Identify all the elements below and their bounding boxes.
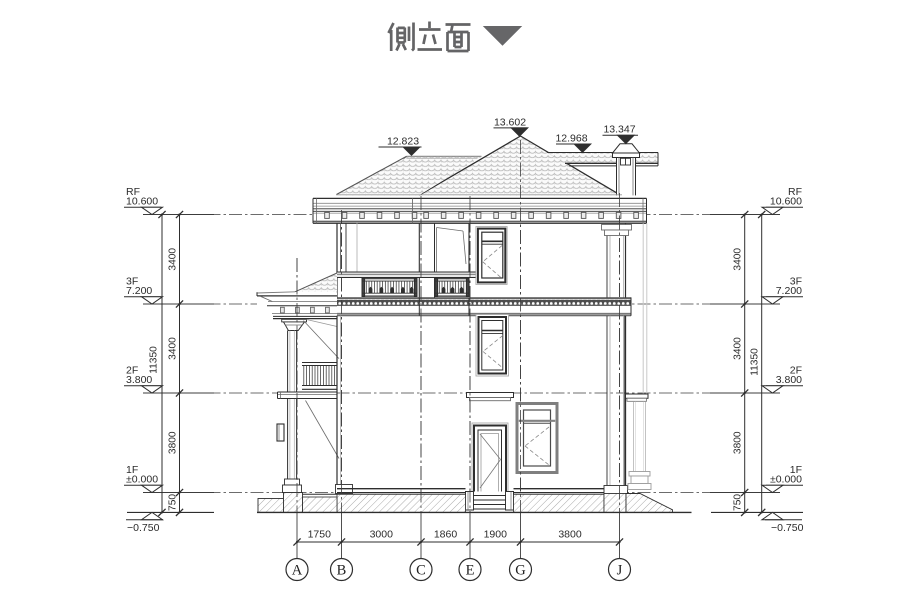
svg-text:3400: 3400 [168,337,179,360]
svg-text:3800: 3800 [558,529,582,541]
svg-text:10.600: 10.600 [770,196,802,208]
svg-text:750: 750 [733,494,744,511]
svg-text:3.800: 3.800 [126,374,152,386]
svg-text:3400: 3400 [733,248,744,271]
svg-text:B: B [337,563,347,579]
svg-text:3.800: 3.800 [776,374,802,386]
svg-text:C: C [416,563,426,579]
svg-text:−0.750: −0.750 [771,522,804,534]
svg-text:750: 750 [168,494,179,511]
svg-text:7.200: 7.200 [776,285,802,297]
svg-text:3400: 3400 [168,248,179,271]
svg-text:12.968: 12.968 [555,133,587,145]
svg-text:1750: 1750 [308,529,332,541]
svg-text:11350: 11350 [750,348,761,376]
svg-text:1860: 1860 [434,529,458,541]
svg-text:3800: 3800 [733,431,744,454]
svg-text:13.602: 13.602 [494,116,526,128]
svg-text:G: G [515,563,526,579]
svg-text:3800: 3800 [168,431,179,454]
svg-text:10.600: 10.600 [126,196,158,208]
svg-text:A: A [292,563,303,579]
svg-text:±0.000: ±0.000 [770,474,802,486]
svg-text:−0.750: −0.750 [127,522,160,534]
svg-text:13.347: 13.347 [603,124,635,136]
svg-text:E: E [466,563,475,579]
svg-text:11350: 11350 [149,346,160,374]
svg-text:12.823: 12.823 [387,136,419,148]
svg-text:J: J [617,563,623,579]
svg-text:±0.000: ±0.000 [126,474,158,486]
svg-text:3000: 3000 [370,529,394,541]
svg-text:7.200: 7.200 [126,285,152,297]
svg-text:3400: 3400 [733,337,744,360]
svg-text:1900: 1900 [484,529,508,541]
